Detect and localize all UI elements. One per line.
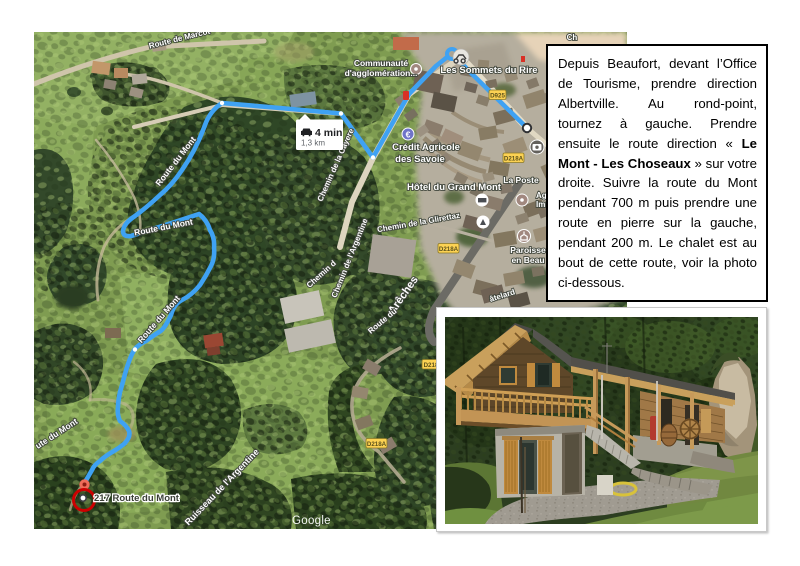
svg-text:d'agglomération...: d'agglomération... bbox=[345, 68, 418, 78]
svg-text:D218A: D218A bbox=[439, 246, 459, 253]
svg-text:Crédit Agricole: Crédit Agricole bbox=[392, 142, 460, 153]
svg-text:Paroisse: Paroisse bbox=[510, 245, 546, 255]
svg-text:D218A: D218A bbox=[367, 441, 387, 448]
svg-text:Ch: Ch bbox=[567, 33, 578, 42]
svg-text:Google: Google bbox=[292, 515, 331, 527]
svg-text:La Poste: La Poste bbox=[503, 175, 539, 185]
svg-text:D218A: D218A bbox=[504, 155, 524, 162]
svg-text:en Beau: en Beau bbox=[511, 255, 544, 265]
svg-text:des Savoie: des Savoie bbox=[395, 154, 445, 165]
svg-text:Les Sommets du Rire: Les Sommets du Rire bbox=[440, 65, 537, 76]
svg-text:Hôtel du Grand Mont: Hôtel du Grand Mont bbox=[407, 182, 502, 193]
svg-text:D925: D925 bbox=[490, 92, 505, 99]
svg-text:€: € bbox=[406, 130, 411, 140]
svg-text:Communauté: Communauté bbox=[354, 58, 409, 68]
svg-text:4 min: 4 min bbox=[315, 127, 342, 139]
svg-text:1,3 km: 1,3 km bbox=[301, 139, 325, 148]
svg-text:217 Route du Mont: 217 Route du Mont bbox=[94, 493, 180, 504]
